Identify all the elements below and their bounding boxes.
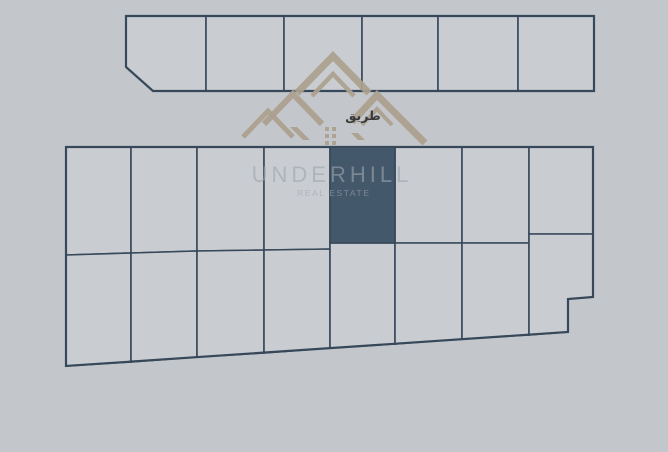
roof-fragment-icon: [351, 133, 365, 140]
plot-cell[interactable]: [438, 16, 518, 91]
plot-cell[interactable]: [131, 251, 197, 362]
plot-cell[interactable]: [330, 243, 395, 348]
plot-cell[interactable]: [529, 234, 593, 335]
plot-cell[interactable]: [66, 147, 131, 255]
plot-cell[interactable]: [206, 16, 284, 91]
window-grid-icon: [332, 141, 336, 145]
plot-cell[interactable]: [197, 250, 264, 357]
plot-cell[interactable]: [395, 243, 462, 344]
road-label: طريق: [345, 108, 381, 123]
site-plan-svg: [0, 0, 668, 452]
plot-cell[interactable]: [529, 147, 593, 234]
window-grid-icon: [325, 141, 329, 145]
plot-cell[interactable]: [264, 249, 330, 353]
plot-cell[interactable]: [462, 147, 529, 243]
plot-cell[interactable]: [66, 253, 131, 366]
watermark-tagline: REAL ESTATE: [295, 188, 370, 198]
plot-cell[interactable]: [131, 147, 197, 253]
plot-cell[interactable]: [126, 16, 206, 91]
plot-cell[interactable]: [518, 16, 594, 91]
roof-chevron-icon: [264, 94, 322, 124]
watermark-brand: UNDERHILL: [248, 162, 413, 188]
plot-cell[interactable]: [462, 243, 529, 339]
window-grid-icon: [325, 127, 329, 131]
window-grid-icon: [325, 134, 329, 138]
plot-cell[interactable]: [284, 16, 362, 91]
window-grid-icon: [332, 134, 336, 138]
site-plan-screenshot: UNDERHILL REAL ESTATE طريق: [0, 0, 668, 452]
window-grid-icon: [332, 127, 336, 131]
plot-cell[interactable]: [362, 16, 438, 91]
